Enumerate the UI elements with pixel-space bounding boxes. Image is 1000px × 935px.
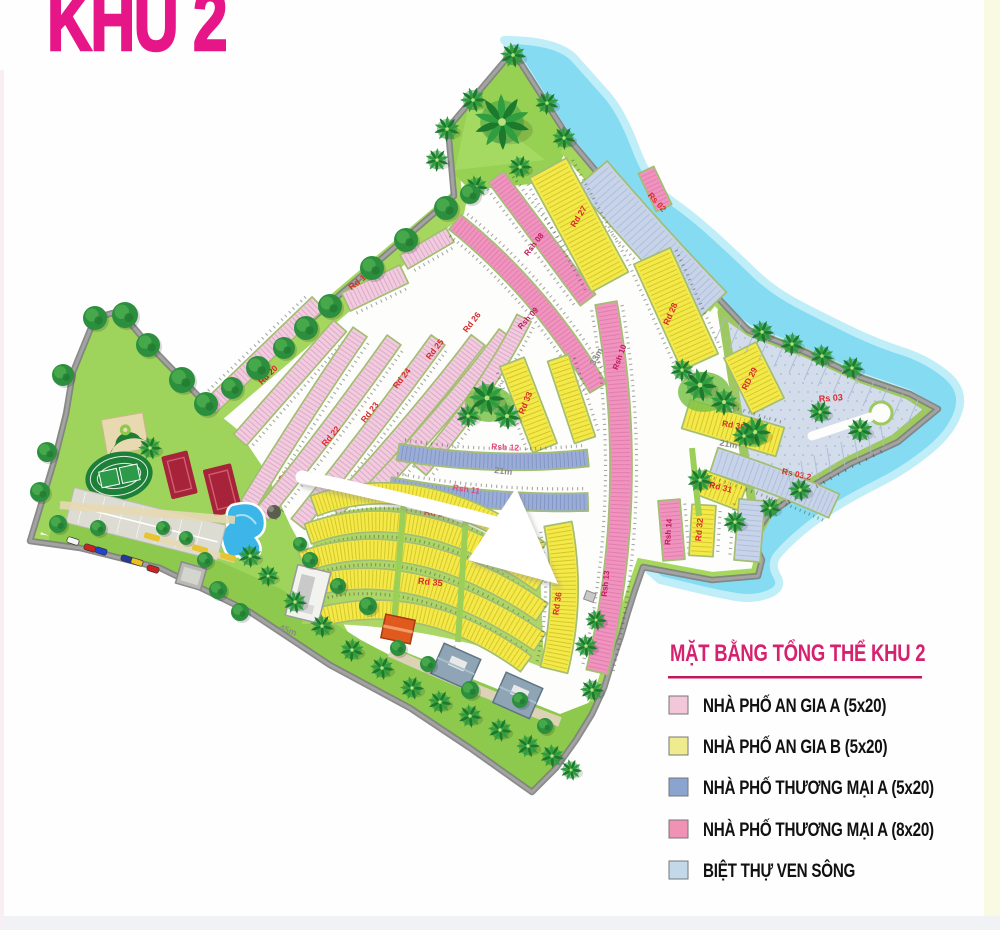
svg-text:NHÀ PHỐ THƯƠNG MẠI A (5x20): NHÀ PHỐ THƯƠNG MẠI A (5x20) — [703, 775, 934, 798]
svg-text:BIỆT THỰ VEN SÔNG: BIỆT THỰ VEN SÔNG — [703, 858, 855, 881]
svg-text:KHU 2: KHU 2 — [47, 0, 226, 68]
svg-text:21m: 21m — [494, 465, 513, 477]
svg-text:NHÀ PHỐ AN GIA B (5x20): NHÀ PHỐ AN GIA B (5x20) — [703, 734, 887, 757]
svg-text:Rsh 14: Rsh 14 — [663, 518, 674, 545]
svg-text:NHÀ PHỐ THƯƠNG MẠI A (8x20): NHÀ PHỐ THƯƠNG MẠI A (8x20) — [703, 817, 934, 840]
svg-text:NHÀ PHỐ AN GIA A (5x20): NHÀ PHỐ AN GIA A (5x20) — [703, 693, 886, 716]
svg-text:Rd 32: Rd 32 — [693, 518, 705, 542]
svg-text:Rsh 12: Rsh 12 — [491, 441, 520, 452]
svg-text:Rs 03: Rs 03 — [818, 392, 843, 404]
svg-text:MẶT BẰNG TỔNG THỂ KHU 2: MẶT BẰNG TỔNG THỂ KHU 2 — [670, 639, 926, 667]
